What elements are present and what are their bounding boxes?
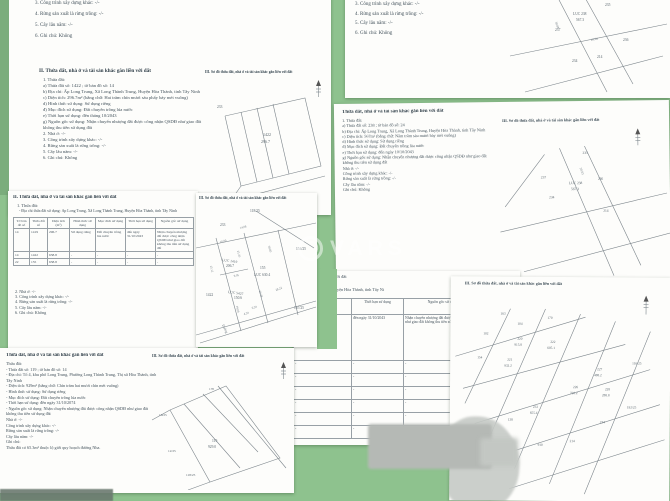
svg-text:6.20: 6.20 [251, 305, 258, 310]
svg-text:170: 170 [547, 316, 552, 320]
svg-text:237: 237 [541, 175, 547, 179]
cadastral-sketch-1422: 1422 296.7 233 1419 155 [207, 88, 327, 210]
svg-text:154: 154 [477, 355, 482, 359]
previous-section-tail: 3. Công trình xây dựng khác: -/-4. Rừng … [35, 0, 245, 42]
vars-wordmark: VARS [330, 237, 407, 261]
svg-text:567.3: 567.3 [571, 187, 579, 191]
document-line: 4. Rừng sản xuất là rừng trồng: -/- [35, 9, 245, 20]
table-header-cell: Tờ bản đồ số [14, 218, 30, 229]
svg-text:26.38: 26.38 [258, 290, 264, 298]
svg-text:116/25: 116/25 [632, 362, 642, 366]
svg-text:910: 910 [538, 443, 543, 447]
vars-watermark: VARS [298, 236, 407, 261]
svg-text:167/25: 167/25 [294, 306, 304, 310]
svg-text:234: 234 [572, 59, 578, 63]
section-heading: Thửa đất, nhà ở và tài sản khác gắn liền… [342, 108, 502, 115]
parcel-table: Tờ bản đồ sốThửa đất sốDiện tích (m²)Hìn… [13, 217, 194, 266]
section-ii-heading: II. Thửa đất, nhà ở và tài sản khác gắn … [39, 68, 214, 74]
address-line: - Địa chỉ thửa đất sử dụng: Ấp Long Trun… [19, 209, 194, 213]
svg-text:119: 119 [212, 439, 217, 443]
svg-text:296.7: 296.7 [261, 139, 270, 144]
svg-text:16/25: 16/25 [159, 413, 167, 417]
svg-text:233: 233 [533, 405, 538, 409]
table-row: 141422638.8---- [14, 252, 194, 259]
svg-text:915.8: 915.8 [514, 343, 522, 347]
previous-section-tail: 3. Công trình xây dựng khác: -/-4. Rừng … [355, 0, 505, 38]
scan-artifact-small [480, 438, 518, 466]
svg-text:LUC 630.4: LUC 630.4 [254, 273, 270, 277]
page-middle-left-table: II. Thửa đất, nhà ở và tài sản khác gắn … [8, 191, 198, 351]
document-line: 4. Rừng sản xuất là rừng trồng: -/- [355, 10, 505, 20]
parcel-details: Thửa đất:- Thửa đất số: 119 ; tờ bản đồ … [6, 361, 161, 451]
vars-logo-icon [298, 236, 323, 261]
svg-text:234: 234 [600, 420, 605, 424]
svg-text:728.2: 728.2 [570, 391, 578, 395]
svg-text:288.8: 288.8 [602, 393, 610, 397]
svg-text:138: 138 [508, 418, 513, 422]
document-line: 5. Cây lâu năm: -/- [35, 20, 245, 31]
svg-text:30.03: 30.03 [579, 167, 585, 175]
svg-text:233: 233 [217, 105, 223, 109]
svg-text:226: 226 [573, 385, 578, 389]
section-ii-heading: II. Thửa đất, nhà ở và tài sản khác gắn … [13, 195, 193, 200]
svg-text:221: 221 [507, 358, 512, 362]
cadastral-sketch-238-top: 235 LUC 238 567.3 237 236 18.06 214 234 … [495, 0, 670, 96]
sketch-heading: III. Sơ đồ thửa đất, nhà ở và tài sản kh… [199, 196, 313, 200]
page-top-left-certificate: 3. Công trình xây dựng khác: -/-4. Rừng … [9, 0, 331, 215]
svg-text:30.03: 30.03 [267, 245, 273, 253]
svg-text:10.00: 10.00 [219, 238, 227, 244]
parcel-details: 1. Thửa đất:a) Thửa đất số: 1422 ; tờ bả… [43, 77, 211, 161]
svg-text:932.2: 932.2 [504, 364, 512, 368]
svg-text:233: 233 [220, 223, 226, 227]
table-header-row: Tờ bản đồ sốThửa đất sốDiện tích (m²)Hìn… [14, 218, 194, 229]
svg-text:25.12: 25.12 [209, 265, 215, 273]
svg-text:150.6: 150.6 [234, 296, 242, 300]
sketch-heading: III. Sơ đồ thửa đất, nhà ở và tài sản kh… [502, 116, 652, 123]
svg-text:214: 214 [597, 55, 603, 59]
svg-text:102: 102 [483, 331, 488, 335]
svg-text:Đường: Đường [221, 324, 229, 335]
section-heading: Thửa đất, nhà ở và tài sản khác gắn liền… [6, 353, 156, 358]
svg-text:929.0: 929.0 [208, 445, 216, 449]
document-line: Thửa đất có 65.3m² thuộc lộ giới quy hoạ… [6, 445, 161, 451]
sketch-heading: III. Sơ đồ thửa đất, nhà ở và tài sản kh… [152, 354, 290, 358]
svg-text:206.7: 206.7 [226, 264, 234, 268]
document-line: 6. Ghi chú: Không [15, 310, 185, 315]
svg-text:LUC 238: LUC 238 [569, 181, 583, 185]
svg-text:220: 220 [517, 337, 522, 341]
svg-text:21.35: 21.35 [236, 250, 242, 258]
svg-text:192/25: 192/25 [627, 405, 637, 409]
cadastral-sketch-119: 170 16/25 119 929.0 12/25 118/25 [148, 376, 290, 490]
svg-text:236: 236 [623, 38, 629, 42]
svg-text:4.20: 4.20 [243, 311, 250, 316]
document-line: 6. Ghi chú: Không [43, 155, 211, 161]
svg-text:14.08: 14.08 [239, 224, 247, 230]
table-header-cell: Nguồn gốc sử dụng [156, 218, 194, 229]
svg-text:104: 104 [517, 322, 522, 326]
table-row: 141419296.7Sử dụng riêngĐất chuyên trồng… [14, 229, 194, 252]
cadastral-sketch-1419-155-5427: 118/25 233 154/25 1422 167/25 LUC 1419 2… [196, 203, 317, 347]
sketch-heading: III. Sơ đồ thửa đất, nhà ở và tài sản kh… [205, 70, 329, 74]
section-tail: 2. Nhà ở: -/-3. Công trình xây dựng khác… [15, 289, 185, 315]
svg-text:222: 222 [550, 340, 555, 344]
subsection-label: 1. Thửa đất: [17, 203, 38, 208]
svg-text:655.4: 655.4 [530, 411, 538, 415]
svg-text:163: 163 [501, 312, 506, 316]
svg-text:28.22: 28.22 [275, 286, 283, 292]
left-green-strip [0, 0, 9, 195]
table-header-cell: Thời hạn sử dụng [126, 218, 156, 229]
cadastral-sketch-238: 235 237 LUC 238 567.3 236 234 214 30.03 [484, 145, 670, 285]
page-shadow [0, 489, 113, 501]
table-row: 22155638.8---- [14, 259, 194, 266]
page-bottom-left-certificate: Thửa đất, nhà ở và tài sản khác gắn liền… [0, 348, 294, 493]
page-top-center-certificate: 3. Công trình xây dựng khác: -/-4. Rừng … [345, 0, 670, 98]
svg-text:1422: 1422 [206, 293, 213, 297]
svg-text:12/25: 12/25 [168, 449, 176, 453]
svg-text:567.3: 567.3 [576, 18, 584, 22]
table-header-cell: Thửa đất số [30, 218, 48, 229]
svg-text:1422: 1422 [263, 132, 271, 137]
table-header-cell: Mục đích sử dụng [96, 218, 126, 229]
svg-text:605.1: 605.1 [547, 346, 555, 350]
table-header-cell: Diện tích (m²) [48, 218, 70, 229]
svg-text:488.2: 488.2 [594, 373, 602, 377]
svg-text:118/25: 118/25 [250, 209, 260, 213]
svg-text:228: 228 [605, 387, 610, 391]
page-center-map: III. Sơ đồ thửa đất, nhà ở và tài sản kh… [196, 193, 317, 347]
svg-text:234: 234 [549, 195, 555, 199]
svg-text:9.05: 9.05 [233, 273, 239, 278]
svg-text:214: 214 [603, 209, 609, 213]
svg-text:18.06: 18.06 [590, 36, 598, 41]
document-line: 3. Công trình xây dựng khác: -/- [355, 0, 505, 10]
table-header-cell: Hình thức sử dụng [70, 218, 96, 229]
sketch-heading: III. Sơ đồ thửa đất, nhà ở và tài sản kh… [465, 280, 660, 286]
scanned-documents-collage: 3. Công trình xây dựng khác: -/-4. Rừng … [0, 0, 670, 501]
svg-text:227: 227 [597, 367, 602, 371]
svg-text:214: 214 [570, 439, 575, 443]
table-header-cell: Thời hạn sử dụng [352, 299, 404, 315]
document-line: Ghi chú: Không [343, 185, 505, 192]
document-line: 5. Cây lâu năm: -/- [355, 19, 505, 29]
background-gap [317, 269, 337, 349]
parcel-details: 1. Thửa đất:a) Thửa đất số: 238 ; tờ bản… [342, 116, 505, 192]
svg-text:LUC 238: LUC 238 [573, 12, 587, 16]
svg-text:118/25: 118/25 [186, 473, 196, 477]
svg-text:235: 235 [582, 151, 588, 155]
svg-text:235: 235 [605, 3, 611, 7]
svg-text:170: 170 [209, 387, 214, 391]
svg-text:155: 155 [260, 266, 266, 270]
svg-text:236: 236 [598, 177, 604, 181]
scan-artifact-large [368, 424, 492, 469]
document-line: - Địa chỉ: Tổ 4, khu phố Long Trung, Phư… [6, 372, 161, 378]
document-line: 3. Công trình xây dựng khác: -/- [35, 0, 245, 9]
document-line: 6. Ghi chú: Không [35, 31, 245, 42]
document-line: 6. Ghi chú: Không [355, 29, 505, 39]
